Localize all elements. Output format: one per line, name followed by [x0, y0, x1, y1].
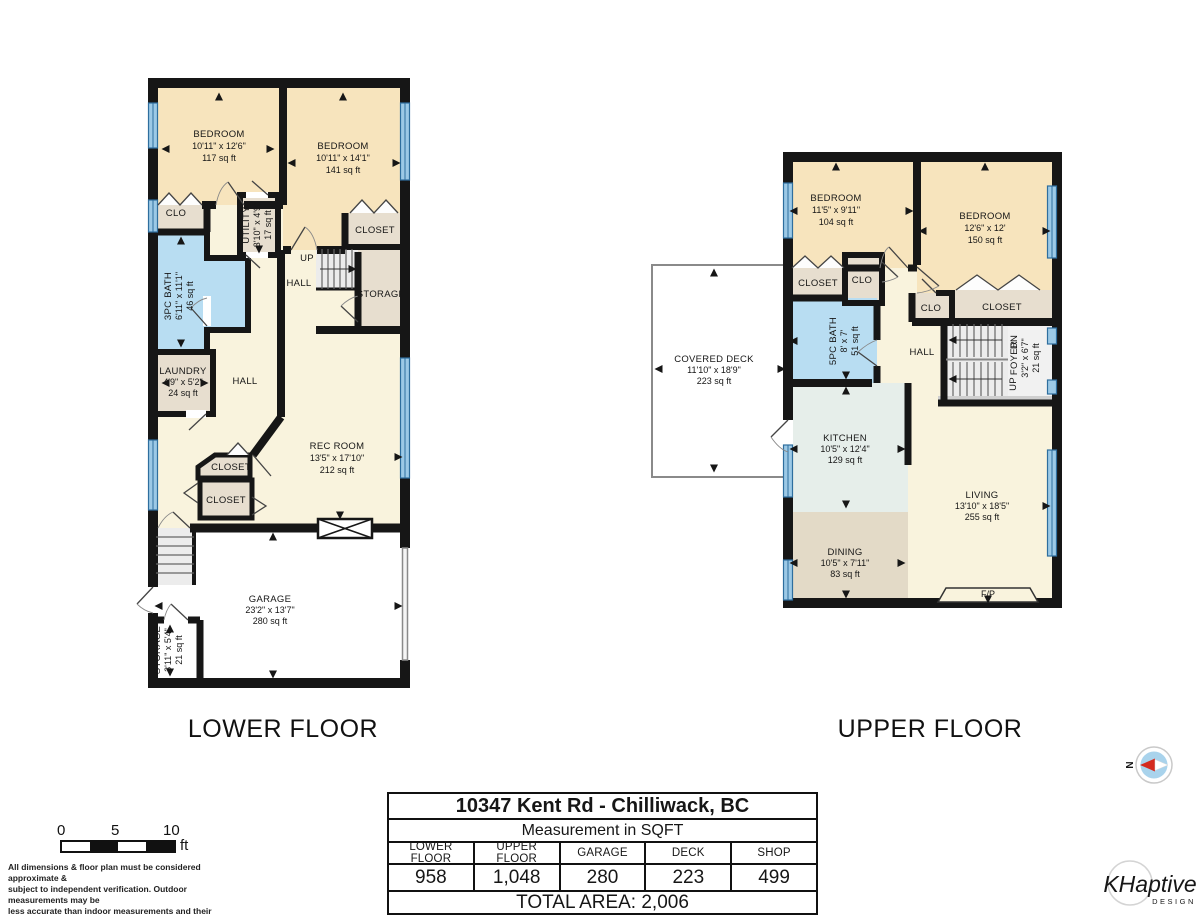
brand-logo: KHaptive DESIGN — [1092, 850, 1200, 915]
room-dims-bedroom1: 10'11" x 12'6" — [192, 141, 246, 151]
disclaimer-text: All dimensions & floor plan must be cons… — [8, 862, 248, 915]
svg-text:3'10" x 4'9": 3'10" x 4'9" — [252, 203, 262, 247]
room-area-bedroom1: 117 sq ft — [202, 153, 236, 163]
val-shop: 499 — [732, 865, 816, 890]
svg-text:21 sq ft: 21 sq ft — [174, 635, 184, 665]
scale-seg-3 — [118, 842, 146, 851]
val-lower-floor: 958 — [389, 865, 475, 890]
svg-text:6'11" x 11'1": 6'11" x 11'1" — [174, 272, 184, 320]
compass-rose: N — [1118, 742, 1178, 793]
scale-seg-4 — [146, 842, 174, 851]
disclaimer-line-1: All dimensions & floor plan must be cons… — [8, 862, 248, 884]
room-label-u-up: UP — [1008, 377, 1019, 391]
col-garage: GARAGE — [561, 843, 647, 863]
room-dims-dining: 10'5" x 7'11" — [821, 558, 870, 568]
title-block: 10347 Kent Rd - Chilliwack, BC Measureme… — [387, 792, 818, 915]
scale-tick-5: 5 — [111, 822, 119, 839]
col-lower-floor: LOWER FLOOR — [389, 843, 475, 863]
room-label-u-bedroom2: BEDROOM — [959, 211, 1010, 222]
room-label-bedroom1: BEDROOM — [193, 129, 244, 140]
area-table-header: LOWER FLOOR UPPER FLOOR GARAGE DECK SHOP — [389, 843, 816, 865]
room-area-u-bedroom1: 104 sq ft — [819, 217, 854, 227]
col-upper-floor: UPPER FLOOR — [475, 843, 561, 863]
room-label-storage-a: STORAGE — [357, 289, 405, 300]
room-label-up: UP — [300, 253, 314, 264]
room-label-u-clo-a: CLO — [852, 275, 872, 286]
val-garage: 280 — [561, 865, 647, 890]
svg-text:UTILITY: UTILITY — [241, 206, 252, 244]
room-label-u-closet-a: CLOSET — [798, 278, 838, 289]
scale-bar-segments — [60, 840, 176, 853]
svg-text:3'11" x 5'4": 3'11" x 5'4" — [163, 628, 173, 672]
svg-text:3PC BATH: 3PC BATH — [163, 272, 174, 320]
room-area-u-bedroom2: 150 sq ft — [968, 235, 1003, 245]
room-label-rec-room: REC ROOM — [310, 441, 365, 452]
scale-seg-2 — [90, 842, 118, 851]
room-dims-living: 13'10" x 18'5" — [955, 501, 1009, 511]
room-dims-garage: 23'2" x 13'7" — [245, 605, 294, 615]
upper-floor-plan: BEDROOM 11'5" x 9'11" 104 sq ft BEDROOM … — [652, 157, 1057, 743]
svg-text:FOYER: FOYER — [1009, 341, 1020, 375]
address-title: 10347 Kent Rd - Chilliwack, BC — [389, 794, 816, 820]
room-area-kitchen: 129 sq ft — [828, 455, 863, 465]
room-dims-bedroom2: 10'11" x 14'1" — [316, 153, 370, 163]
svg-text:21 sq ft: 21 sq ft — [1031, 343, 1041, 373]
room-label-deck: COVERED DECK — [674, 354, 754, 365]
room-area-rec-room: 212 sq ft — [320, 465, 355, 475]
val-deck: 223 — [646, 865, 732, 890]
svg-text:3'2" x 6'7": 3'2" x 6'7" — [1020, 338, 1030, 377]
upper-floor-caption: UPPER FLOOR — [838, 715, 1023, 743]
room-dims-rec-room: 13'5" x 17'10" — [310, 453, 364, 463]
disclaimer-line-2: subject to independent verification. Out… — [8, 884, 248, 906]
lower-floor-caption: LOWER FLOOR — [188, 715, 378, 743]
room-label-foyer: FOYER 3'2" x 6'7" 21 sq ft — [1009, 338, 1041, 377]
scale-tick-10: 10 — [163, 822, 180, 839]
room-label-dining: DINING — [827, 547, 862, 558]
col-shop: SHOP — [732, 843, 816, 863]
scale-tick-0: 0 — [57, 822, 65, 839]
room-label-u-hall: HALL — [910, 347, 935, 358]
col-deck: DECK — [646, 843, 732, 863]
svg-text:51 sq ft: 51 sq ft — [850, 326, 860, 356]
svg-text:8' x 7': 8' x 7' — [839, 329, 849, 352]
room-label-fireplace: F/P — [981, 589, 995, 599]
room-label-u-bedroom1: BEDROOM — [810, 193, 861, 204]
room-label-closet-c: CLOSET — [206, 495, 246, 506]
room-label-closet-a: CLOSET — [355, 225, 395, 236]
logo-sub: DESIGN — [1152, 897, 1196, 906]
compass-north-label: N — [1125, 761, 1136, 768]
room-label-laundry: LAUNDRY — [159, 366, 207, 377]
room-label-u-clo-b: CLO — [921, 303, 941, 314]
area-table-values: 958 1,048 280 223 499 — [389, 865, 816, 892]
room-area-laundry: 24 sq ft — [168, 388, 198, 398]
room-label-hall-b: HALL — [233, 376, 258, 387]
room-label-closet-b: CLOSET — [211, 462, 251, 473]
floor-plans-drawing: BEDROOM 10'11" x 12'6" 117 sq ft BEDROOM… — [0, 0, 1200, 915]
room-dims-kitchen: 10'5" x 12'4" — [820, 444, 869, 454]
room-area-living: 255 sq ft — [965, 512, 1000, 522]
room-label-kitchen: KITCHEN — [823, 433, 867, 444]
room-label-u-closet-b: CLOSET — [982, 302, 1022, 313]
svg-text:5PC BATH: 5PC BATH — [828, 317, 839, 365]
room-dims-u-bedroom1: 11'5" x 9'11" — [812, 205, 860, 215]
svg-text:17 sq ft: 17 sq ft — [263, 210, 273, 240]
floor-plan-page: BEDROOM 10'11" x 12'6" 117 sq ft BEDROOM… — [0, 0, 1200, 915]
scale-seg-1 — [62, 842, 90, 851]
svg-text:46 sq ft: 46 sq ft — [185, 281, 195, 311]
room-label-bedroom2: BEDROOM — [317, 141, 368, 152]
logo-name: KHaptive — [1103, 871, 1196, 897]
room-dims-laundry: 4'9" x 5'2" — [163, 377, 202, 387]
svg-text:STORAGE: STORAGE — [152, 626, 163, 674]
measurement-subtitle: Measurement in SQFT — [389, 820, 816, 843]
room-label-clo: CLO — [166, 208, 186, 219]
room-label-garage: GARAGE — [249, 594, 291, 605]
room-area-deck: 223 sq ft — [697, 376, 732, 386]
room-label-living: LIVING — [966, 490, 999, 501]
garage-door — [403, 548, 408, 660]
room-area-dining: 83 sq ft — [830, 569, 860, 579]
room-dims-deck: 11'10" x 18'9" — [687, 365, 741, 375]
lower-floor-plan: BEDROOM 10'11" x 12'6" 117 sq ft BEDROOM… — [137, 83, 410, 743]
garage-beam-hatch — [318, 519, 372, 538]
total-area: TOTAL AREA: 2,006 — [389, 892, 816, 913]
room-area-bedroom2: 141 sq ft — [326, 165, 361, 175]
scale-unit: ft — [180, 837, 188, 854]
room-area-garage: 280 sq ft — [253, 616, 288, 626]
room-label-hall-a: HALL — [287, 278, 312, 289]
room-dims-u-bedroom2: 12'6" x 12' — [964, 223, 1005, 233]
disclaimer-line-3: less accurate than indoor measurements a… — [8, 906, 248, 915]
val-upper-floor: 1,048 — [475, 865, 561, 890]
